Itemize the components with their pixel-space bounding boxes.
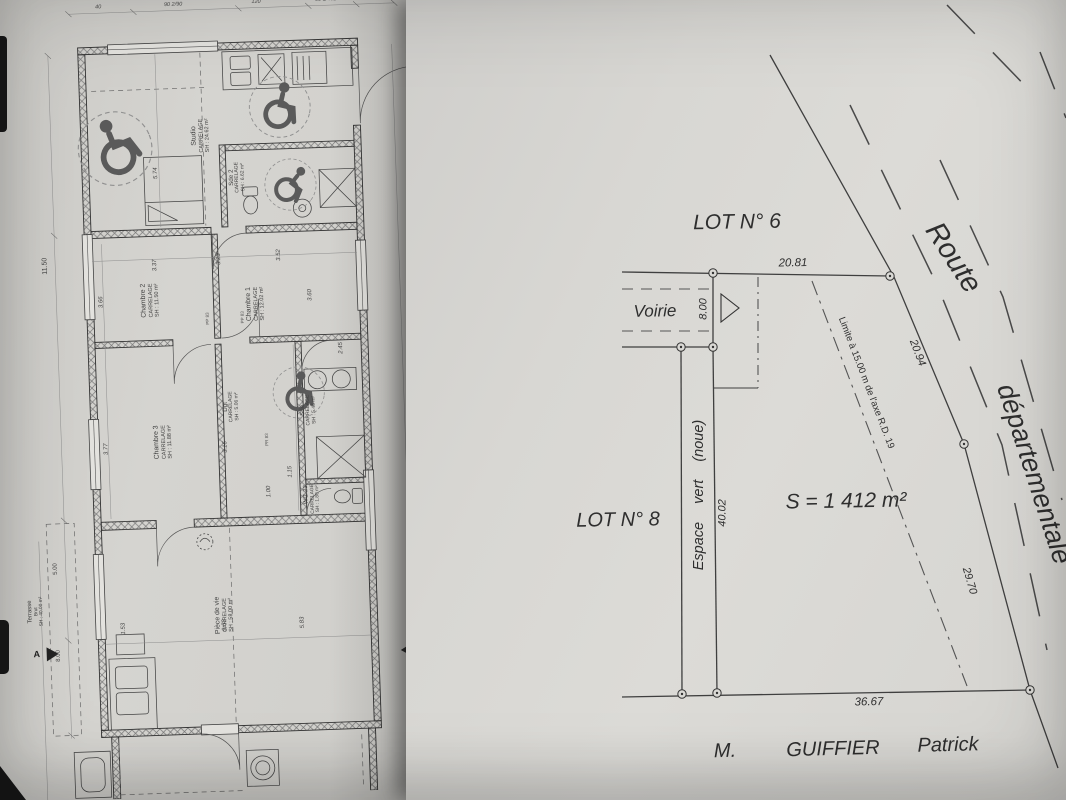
site-plan-svg (0, 0, 1066, 800)
lot8-label: LOT N° 8 (576, 509, 660, 530)
owner-last-name: GUIFFIER (786, 738, 880, 760)
photo-of-plans: Studio CARRELAGE SH : 24.62 m² Sde 2 CAR… (0, 0, 1066, 800)
dim-voirie-width: 8.00 (699, 298, 710, 319)
photo-edge (0, 620, 9, 674)
voirie-label: Voirie (633, 302, 676, 320)
lot-boundaries (622, 55, 1058, 768)
site-plan: LOT N° 6 LOT N° 8 Voirie 8.00 20.81 Espa… (0, 0, 1066, 800)
owner-first-name: Patrick (917, 734, 979, 756)
photo-edge (0, 36, 7, 132)
dim-west-strip: 40.02 (718, 499, 729, 527)
owner-title: M. (714, 741, 737, 762)
road-centerlines (850, 5, 1066, 650)
direction-arrow (721, 294, 739, 322)
survey-points (677, 269, 1034, 698)
green-strip-label: Espace vert (noue) (692, 420, 707, 571)
lot6-label: LOT N° 6 (693, 211, 781, 234)
lot-area-label: S = 1 412 m² (785, 489, 906, 512)
dim-south-boundary: 36.67 (855, 697, 884, 709)
dim-north-boundary: 20.81 (779, 258, 808, 270)
